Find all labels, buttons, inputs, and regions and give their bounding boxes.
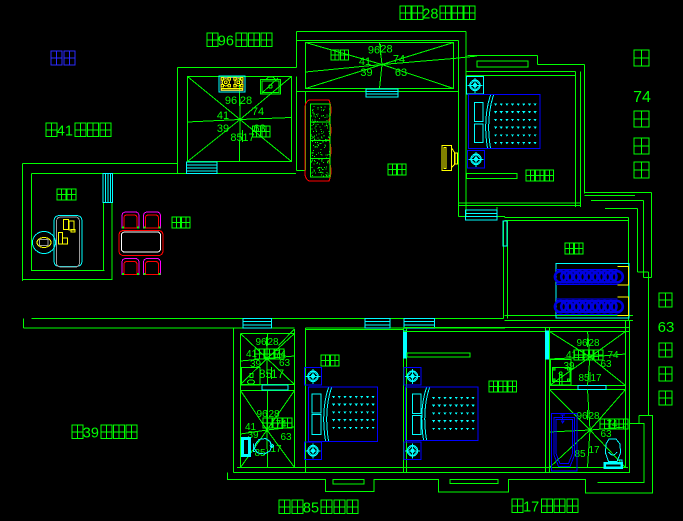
svg-text:96: 96 <box>576 338 588 349</box>
svg-text:74: 74 <box>393 54 405 66</box>
svg-text:17: 17 <box>270 444 282 455</box>
svg-text:39: 39 <box>83 426 99 442</box>
svg-text:39: 39 <box>217 123 229 135</box>
svg-text:28: 28 <box>240 95 252 107</box>
svg-text:63: 63 <box>253 123 265 135</box>
svg-text:96: 96 <box>225 95 237 107</box>
svg-text:96: 96 <box>368 45 380 57</box>
svg-text:63: 63 <box>658 319 675 336</box>
svg-text:28: 28 <box>380 44 392 56</box>
svg-text:74: 74 <box>633 89 651 106</box>
svg-text:63: 63 <box>600 359 612 370</box>
svg-text:17: 17 <box>590 373 602 384</box>
svg-text:85: 85 <box>230 132 242 144</box>
svg-text:28: 28 <box>588 411 600 422</box>
svg-text:39: 39 <box>360 67 372 79</box>
svg-text:17: 17 <box>588 445 600 456</box>
svg-text:85: 85 <box>574 449 586 460</box>
svg-text:96: 96 <box>576 411 588 422</box>
svg-text:85: 85 <box>578 373 590 384</box>
svg-text:28: 28 <box>422 7 438 23</box>
svg-text:41: 41 <box>57 124 73 140</box>
svg-text:85: 85 <box>303 501 319 517</box>
svg-text:63: 63 <box>600 429 612 440</box>
svg-text:41: 41 <box>217 110 229 122</box>
svg-text:17: 17 <box>523 500 539 516</box>
svg-text:63: 63 <box>395 67 407 79</box>
svg-text:28: 28 <box>588 338 600 349</box>
svg-text:96: 96 <box>255 337 267 348</box>
svg-text:17: 17 <box>271 367 285 381</box>
svg-text:74: 74 <box>252 106 264 118</box>
svg-text:96: 96 <box>218 34 234 50</box>
svg-text:63: 63 <box>280 432 292 443</box>
svg-text:28: 28 <box>267 337 279 348</box>
